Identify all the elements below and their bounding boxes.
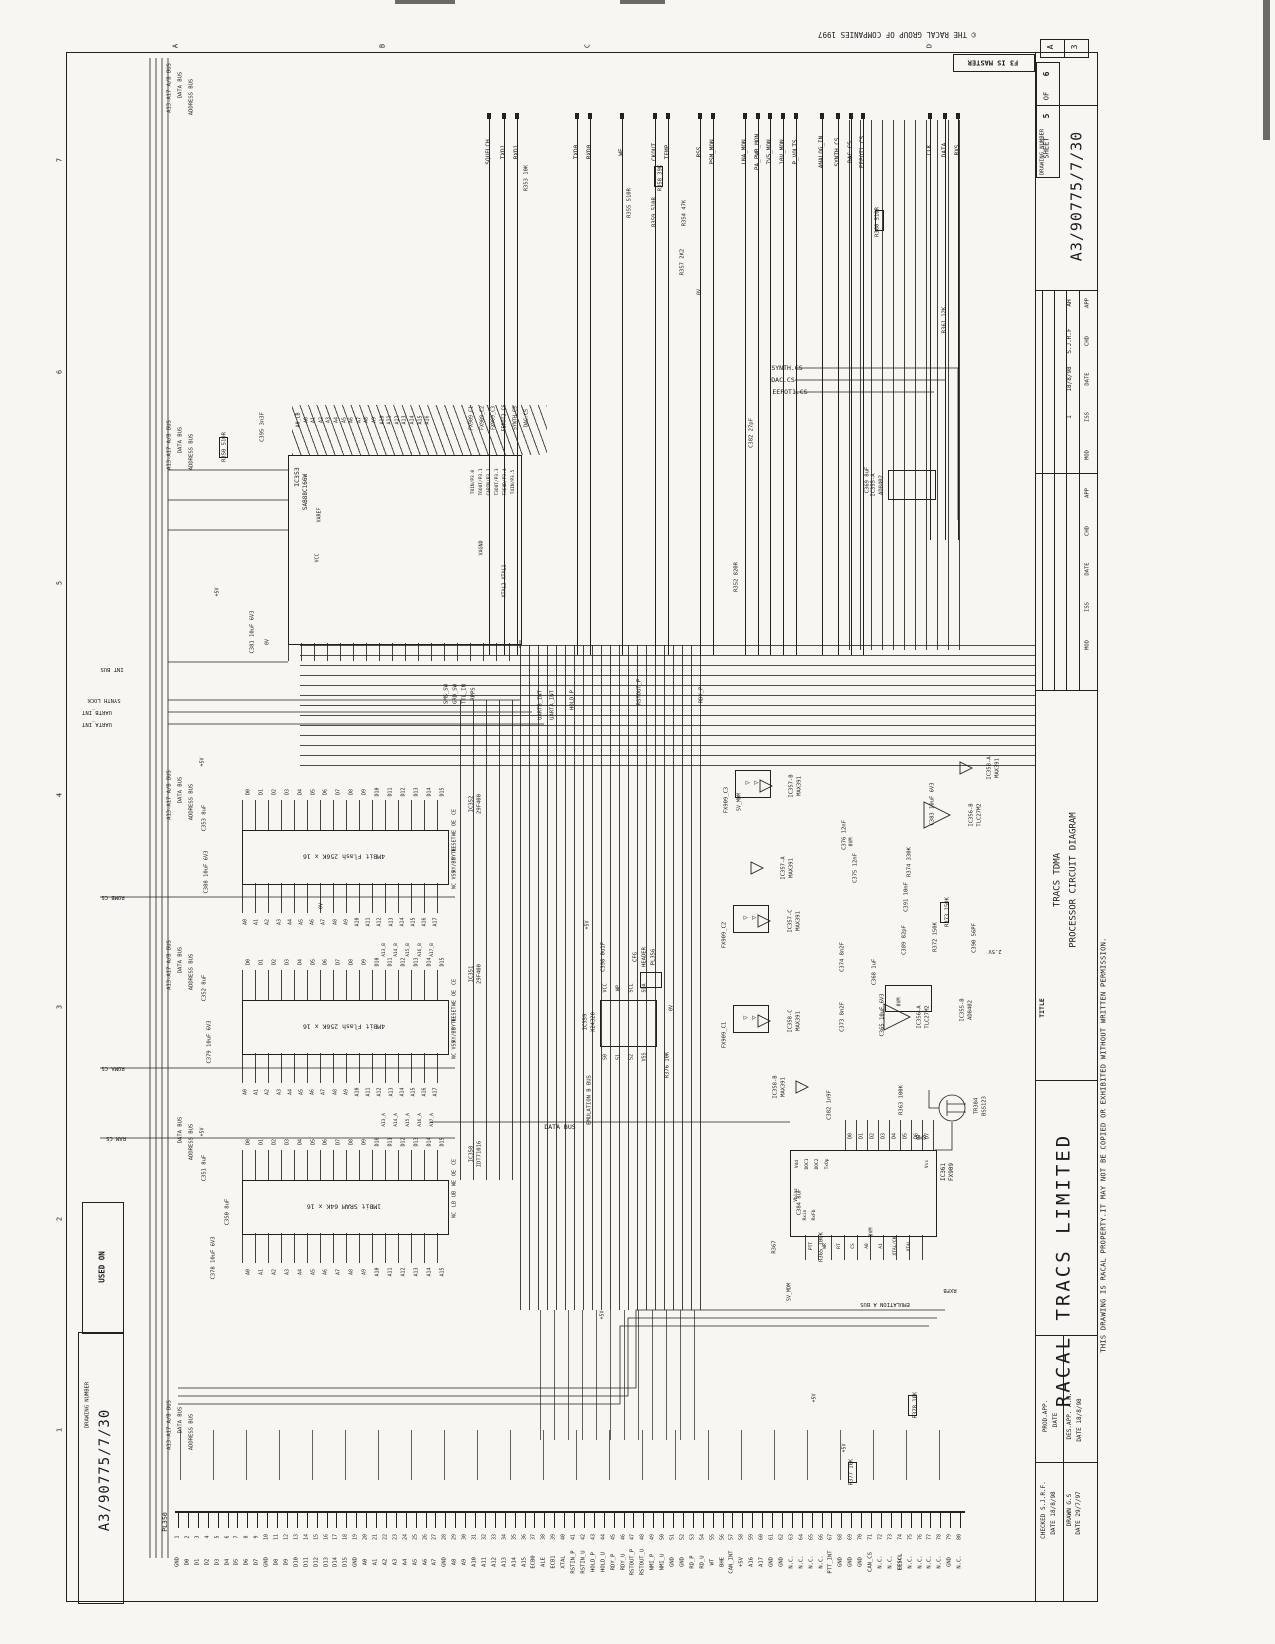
connector-pin-number: 57 <box>730 1534 735 1540</box>
pin-label: A7 <box>322 1089 327 1095</box>
component-label: R361 12K <box>942 307 948 334</box>
bus-label: ADDRESS BUS <box>189 434 195 470</box>
connector-pin-number: 71 <box>869 1534 874 1540</box>
pin-label: D4 <box>893 1133 898 1139</box>
terminal-pad-icon <box>781 113 785 119</box>
net-label: INT BUS <box>100 665 123 671</box>
net-label: HOLD_P <box>570 690 576 710</box>
pin-label: A17 <box>434 1087 439 1096</box>
scan-artifact <box>620 0 665 4</box>
connector-pin-label: A12 <box>492 1557 498 1567</box>
pin-label: A16 <box>423 1087 428 1096</box>
pin-label: T3OUT/P3.3 <box>496 468 501 495</box>
component-label: C365 10uF 6V3 <box>880 993 886 1036</box>
ic-ref: IC355-A <box>871 473 877 496</box>
signal-label: TXD1 <box>501 145 507 159</box>
pin-label: D5 <box>311 789 316 795</box>
pin-label: D0 <box>247 789 252 795</box>
property-note: THIS DRAWING IS RACAL PROPERTY.IT MAY NO… <box>1101 937 1108 1352</box>
pin-label: D6 <box>324 789 329 795</box>
revision-value: 1 <box>1067 415 1073 419</box>
header-label: CFG <box>633 952 639 962</box>
connector-pin-label: A9 <box>462 1559 468 1566</box>
connector-pin <box>564 1512 565 1528</box>
resistor-icon <box>940 902 949 923</box>
pin-label: D1 <box>259 1139 264 1145</box>
connector-pin-label: D7 <box>254 1559 260 1566</box>
pin-label: A2 <box>319 417 324 423</box>
voltage-label: +5V <box>813 1393 818 1402</box>
connector-pin <box>376 1512 377 1528</box>
connector-pin <box>772 1512 773 1528</box>
net-label: ROMB CS <box>101 893 124 899</box>
revision-header: DATE <box>1085 372 1091 385</box>
connector-pin <box>297 1512 298 1528</box>
connector-pin-label: RDY_P <box>611 1554 617 1571</box>
connector-pin-number: 51 <box>671 1534 676 1540</box>
resistor-icon <box>219 437 228 458</box>
pin-label: A5 <box>311 1269 316 1275</box>
component-label: C353 8uF <box>202 805 208 832</box>
voltage-label: 0V <box>670 1005 675 1011</box>
connector-pin-label: GND <box>858 1557 864 1567</box>
connector-pin <box>653 1512 654 1528</box>
component-label: R357 2K2 <box>680 249 686 276</box>
component-label: R354 47K <box>682 200 688 227</box>
component-label: C373 8n2F <box>840 1002 846 1032</box>
connector-pin <box>386 1512 387 1528</box>
connector-pin <box>881 1512 882 1528</box>
connector-pin-label: D4 <box>225 1559 231 1566</box>
pin-label: A12 <box>401 1267 406 1276</box>
signal-label: SYNTH.CS <box>835 138 841 167</box>
ic-part: 29F400 <box>477 964 483 984</box>
pin-label: D8 <box>350 959 355 965</box>
connector-pin <box>950 1512 951 1528</box>
revision-header: CHD <box>1085 336 1091 346</box>
pin-label: A5 <box>342 417 347 423</box>
pin-label: A3 <box>277 919 282 925</box>
connector-pin-number: 67 <box>829 1534 834 1540</box>
voltage-label: 0VM <box>870 1227 875 1236</box>
connector-pin-number: 56 <box>720 1534 725 1540</box>
ic-ref: IC358-A <box>987 756 993 779</box>
connector-pin-number: 37 <box>532 1534 537 1540</box>
connector-pin <box>257 1512 258 1528</box>
revision-header: ISS <box>1085 602 1091 612</box>
connector-pin-number: 12 <box>284 1534 289 1540</box>
component-label: R367 <box>772 1240 778 1253</box>
connector-pin <box>921 1512 922 1528</box>
component-label: C350 8uF <box>225 1199 231 1226</box>
pin-label: A16_B <box>419 943 424 957</box>
pin-label: D10 <box>376 1137 381 1146</box>
pin-label: D3 <box>285 959 290 965</box>
pin-stub-band <box>242 800 447 830</box>
pin-label: A4 <box>335 417 340 423</box>
connector-pin-label: XTAL <box>561 1555 567 1568</box>
pin-label: NC <box>453 1052 458 1058</box>
connector-pin-number: 49 <box>651 1534 656 1540</box>
pin-label: XTAL2 <box>503 582 508 597</box>
filter-opamp-icon: ▷ ▷ <box>744 1015 757 1022</box>
ic-description: 4MBit Flash 256K x 16 <box>303 853 385 860</box>
ic-ref: IC358-C <box>788 1009 794 1032</box>
connector-pin-number: 15 <box>314 1534 319 1540</box>
copyright-note: © THE RACAL GROUP OF COMPANIES 1997 <box>818 30 976 38</box>
frame-top <box>66 52 1098 53</box>
pin-label: D1 <box>860 1133 865 1139</box>
header-label: PL356 <box>651 949 657 966</box>
connector-pin-number: 40 <box>562 1534 567 1540</box>
connector-pin-number: 70 <box>859 1534 864 1540</box>
pin-label: D14 <box>427 787 432 796</box>
connector-pin-number: 68 <box>839 1534 844 1540</box>
connector-pin-number: 36 <box>522 1534 527 1540</box>
pin-label: D5 <box>311 1139 316 1145</box>
connector-pin-label: A6 <box>423 1559 429 1566</box>
connector-pin-label: N.C. <box>789 1555 795 1568</box>
voltage-label: 0V <box>320 903 325 909</box>
connector-pin-number: 79 <box>948 1534 953 1540</box>
net-label: RXFB <box>943 1286 956 1292</box>
master-note: F3 IS MASTER <box>968 59 1019 66</box>
connector-pin-number: 39 <box>552 1534 557 1540</box>
net-label: UARTB_INT <box>82 708 112 714</box>
wire <box>958 118 959 540</box>
ic-ref: IC356-B <box>969 803 975 826</box>
connector-pin-number: 48 <box>641 1534 646 1540</box>
pin-label: A4 <box>288 1089 293 1095</box>
pin-label: A1 <box>255 919 260 925</box>
connector-pin <box>445 1512 446 1528</box>
component-label: R363 100K <box>899 1085 905 1115</box>
connector-pin-number: 63 <box>789 1534 794 1540</box>
drawn-by: DRAWN G.S <box>1067 1494 1073 1527</box>
company-name: RACAL TRACS LIMITED <box>1055 1133 1074 1407</box>
config-header-box <box>640 972 662 988</box>
bus-label: A13-A17 A/B BUS <box>167 420 173 470</box>
wire <box>796 118 797 655</box>
pin-label: XTAL <box>908 1241 913 1252</box>
terminal-pad-icon <box>698 113 702 119</box>
filter-opamp-icon: ▷ ▷ <box>746 780 759 787</box>
pin-label: D5 <box>904 1133 909 1139</box>
ic-ref: IC359 <box>583 1014 589 1031</box>
ic-part: MAX391 <box>995 758 1001 778</box>
pin-label: A11 <box>367 1087 372 1096</box>
frame-bottom <box>66 1601 1098 1602</box>
connector-pin-number: 42 <box>581 1534 586 1540</box>
zone-number: 2 <box>57 1216 64 1220</box>
pin-label: CE <box>453 809 458 815</box>
connector-pin-label: A8 <box>452 1559 458 1566</box>
pin-label: A3 <box>327 417 332 423</box>
connector-pin-number: 9 <box>255 1535 260 1538</box>
pin-label: D13 <box>414 787 419 796</box>
signal-label: RXD1 <box>514 145 520 159</box>
net-label: TTL_IN <box>462 684 468 704</box>
schematic-sheet: © THE RACAL GROUP OF COMPANIES 1997 F3 I… <box>0 0 1275 1644</box>
connector-pin-number: 20 <box>364 1534 369 1540</box>
connector-pin-number: 47 <box>631 1534 636 1540</box>
pin-label: D14 <box>427 1137 432 1146</box>
ic-part: MAX391 <box>797 776 803 796</box>
ic-part: TLC27M2 <box>977 803 983 826</box>
pin-label: CS <box>852 1243 857 1248</box>
ic-part: MAX391 <box>789 858 795 878</box>
bus-label: ADDRESS BUS <box>189 79 195 115</box>
ic-ref: IC351 <box>469 966 475 983</box>
zone-number: 5 <box>57 581 64 585</box>
net-label: DAC.CS <box>771 377 794 384</box>
pin-label: D7 <box>337 1139 342 1145</box>
connector-pin-number: 17 <box>334 1534 339 1540</box>
checked-by: CHECKED S.J.R.F. <box>1041 1481 1047 1539</box>
title-label: TITLE <box>1039 998 1046 1018</box>
pin-label: NC <box>453 1211 458 1217</box>
connector-pin-number: 43 <box>591 1534 596 1540</box>
voltage-label: 0V <box>698 289 703 295</box>
pin-label: CAPIN/P3.2 <box>488 468 493 495</box>
pin-label: A11 <box>388 1267 393 1276</box>
ic-part: 29F400 <box>477 794 483 814</box>
terminal-pad-icon <box>502 113 506 119</box>
pin-label: A15_B <box>407 943 412 957</box>
pin-label: FX909_C1 <box>470 406 475 430</box>
pin-label: A0 <box>866 1243 871 1248</box>
ic-ref: IC357-B <box>789 774 795 797</box>
terminal-pad-icon <box>743 113 747 119</box>
connector-pin <box>218 1512 219 1528</box>
connector-pin-number: 35 <box>512 1534 517 1540</box>
bus-label: DATA BUS <box>178 947 184 974</box>
connector-pin <box>732 1512 733 1528</box>
pin-label: VSS <box>643 1052 648 1061</box>
net-label: RDY_P <box>699 687 705 704</box>
connector-pin-label: NMI_U <box>660 1554 666 1571</box>
component-label: C374 8n2F <box>840 942 846 972</box>
connector-pin <box>455 1512 456 1528</box>
signal-label: 10V_MON <box>780 139 786 164</box>
opamp-triangle-icon <box>924 802 950 828</box>
pin-label: A14 <box>427 1267 432 1276</box>
connector-pin <box>465 1512 466 1528</box>
pin-label: T4IN/P3.5 <box>512 470 517 494</box>
component-label: C384 8uF <box>797 1189 803 1216</box>
pin-label: A13 <box>414 1267 419 1276</box>
ic-part: MAX391 <box>781 1077 787 1097</box>
signal-label: ANALOG_IN <box>819 136 825 169</box>
pin-label: D4 <box>298 1139 303 1145</box>
terminal-pad-icon <box>768 113 772 119</box>
pin-label: UB <box>453 1190 458 1196</box>
pin-label: A9 <box>373 417 378 423</box>
component-label: C389 82pF <box>902 925 908 955</box>
connector-pin <box>346 1512 347 1528</box>
connector-pin-label: D14 <box>334 1557 340 1567</box>
connector-pin-label: N.C. <box>819 1555 825 1568</box>
component-label: R352 820R <box>734 562 740 592</box>
connector-pin <box>594 1512 595 1528</box>
signal-label: EEPOT1.CS <box>860 136 866 169</box>
connector-pin-number: 45 <box>611 1534 616 1540</box>
connector-pin-number: 27 <box>433 1534 438 1540</box>
connector-pin <box>208 1512 209 1528</box>
connector-pin-label: RSTIN_P <box>571 1550 577 1573</box>
pin-label: D4 <box>298 789 303 795</box>
connector-pin <box>841 1512 842 1528</box>
pin-label: OE <box>453 819 458 825</box>
connector-pin-label: GND <box>839 1557 845 1567</box>
pin-label: A9 <box>344 919 349 925</box>
pin-label: A12 <box>378 917 383 926</box>
pin-label: D9 <box>363 789 368 795</box>
bus-label: ADDRESS BUS <box>189 1414 195 1450</box>
connector-pin <box>782 1512 783 1528</box>
connector-pin <box>485 1512 486 1528</box>
component-label: C390 56PF <box>972 923 978 953</box>
connector-pin <box>822 1512 823 1528</box>
terminal-pad-icon <box>928 113 932 119</box>
filter-label: FX909_C2 <box>722 922 728 949</box>
connector-pin <box>633 1512 634 1528</box>
signal-label: PSM_MON <box>710 139 716 164</box>
terminal-pad-icon <box>653 113 657 119</box>
ic-ref: IC358-B <box>773 1075 779 1098</box>
connector-pin-label: ALE <box>542 1557 548 1567</box>
net-label: UARTB_INT <box>538 690 544 720</box>
pin-label: D12 <box>401 957 406 966</box>
connector-pin <box>416 1512 417 1528</box>
pin-label: Vdd <box>796 1160 801 1168</box>
connector-ref: PL350 <box>162 1512 169 1532</box>
connector-pin-number: 64 <box>799 1534 804 1540</box>
connector-pin <box>534 1512 535 1528</box>
connector-pin <box>505 1512 506 1528</box>
connector-pin <box>237 1512 238 1528</box>
connector-pin-number: 34 <box>502 1534 507 1540</box>
ic-ref: IC361 <box>941 1163 947 1181</box>
connector-pin-label: N.C. <box>888 1555 894 1568</box>
filter-label: FX909_C3 <box>724 787 730 814</box>
pin-label: A1 <box>312 417 317 423</box>
zone-letter: B <box>380 44 387 48</box>
pin-label: D3 <box>285 789 290 795</box>
bus-label: DATA BUS <box>178 72 184 99</box>
pin-label: DAC.CS <box>525 409 530 427</box>
frame-left <box>66 52 67 1602</box>
pin-label: A10 <box>356 1087 361 1096</box>
pin-label: D2 <box>272 1139 277 1145</box>
connector-pin <box>802 1512 803 1528</box>
voltage-label: +5V <box>601 1310 606 1319</box>
wire-bundle <box>460 700 518 1180</box>
connector-pin-label: A3 <box>393 1559 399 1566</box>
pin-label: A0 <box>244 1089 249 1095</box>
pin-label: A1 <box>255 1089 260 1095</box>
prod-app: PROD.APP. <box>1043 1400 1049 1433</box>
component-label: R376 10K <box>665 1052 671 1079</box>
pin-label: A13_A <box>383 1113 388 1127</box>
component-label: C379 10uF 6V3 <box>207 1020 213 1063</box>
connector-pin <box>544 1512 545 1528</box>
connector-pin <box>188 1512 189 1528</box>
net-label: EEPOT1.CS <box>772 389 807 396</box>
pin-label: A0 <box>247 1269 252 1275</box>
connector-pin-number: 6 <box>225 1535 230 1538</box>
signal-label: LNA_MON <box>742 139 748 164</box>
connector-pin-number: 25 <box>413 1534 418 1540</box>
wire <box>783 118 784 655</box>
bus-label: A13-A17 A/B BUS <box>167 770 173 820</box>
ic-ref: IC355-B <box>960 998 966 1021</box>
revision-value: AH <box>1067 299 1073 306</box>
pin-label: A3 <box>285 1269 290 1275</box>
connector-pin-label: RSTOUT_P <box>631 1549 637 1576</box>
connector-pin <box>228 1512 229 1528</box>
net-label: EMULATION B BUS <box>587 1075 593 1125</box>
bus-label: A13-A17 A/B BUS <box>167 940 173 990</box>
connector-pin <box>693 1512 694 1528</box>
connector-pin <box>940 1512 941 1528</box>
connector-pin-number: 14 <box>304 1534 309 1540</box>
connector-pin <box>178 1512 179 1528</box>
terminal-pad-icon <box>943 113 947 119</box>
pin-label: A8 <box>333 1089 338 1095</box>
pin-label: XTAL/CK <box>894 1237 899 1256</box>
pin-label: D13 <box>414 1137 419 1146</box>
connector-pin-number: 50 <box>661 1534 666 1540</box>
revision-header: ISS <box>1085 412 1091 422</box>
bus-label: DATA BUS <box>178 1407 184 1434</box>
connector-pin-label: D1 <box>195 1559 201 1566</box>
terminal-pad-icon <box>836 113 840 119</box>
pin-label: D2 <box>871 1133 876 1139</box>
connector-pin-label: D13 <box>324 1557 330 1567</box>
pin-label: A6 <box>350 417 355 423</box>
connector-pin <box>584 1512 585 1528</box>
pin-label: D11 <box>388 957 393 966</box>
component-label: C388 10uF 6V3 <box>204 850 210 893</box>
pin-label: RxFb <box>813 1210 818 1221</box>
pin-label: VAGND <box>480 540 485 555</box>
bus-label: A13-A17 A/B BUS <box>167 63 173 113</box>
sheet-of: OF <box>1044 92 1051 100</box>
voltage-label: 0VM <box>850 837 855 846</box>
resistor-icon <box>654 166 663 187</box>
connector-pin <box>426 1512 427 1528</box>
voltage-label: +5V <box>216 587 221 596</box>
wire <box>758 118 759 655</box>
filter-opamp-icon: ▷ ▷ <box>744 915 757 922</box>
signal-label: CLK <box>927 145 933 156</box>
pin-label: D0 <box>247 1139 252 1145</box>
wire-bundle <box>180 1430 960 1480</box>
ic-part: AD8402 <box>879 475 885 495</box>
connector-pin <box>525 1512 526 1528</box>
component-label: C368 1uF <box>872 959 878 986</box>
connector-pin-number: 33 <box>492 1534 497 1540</box>
scan-artifact <box>1263 0 1270 140</box>
connector-pin <box>515 1512 516 1528</box>
modem-ic-box <box>790 1150 937 1237</box>
connector-pin-label: N.C. <box>908 1555 914 1568</box>
component-label: R365 100K <box>819 1232 825 1262</box>
pin-label: A13 <box>403 415 408 424</box>
pin-stub-band <box>288 643 520 661</box>
voltage-label: 0VM <box>898 997 903 1006</box>
